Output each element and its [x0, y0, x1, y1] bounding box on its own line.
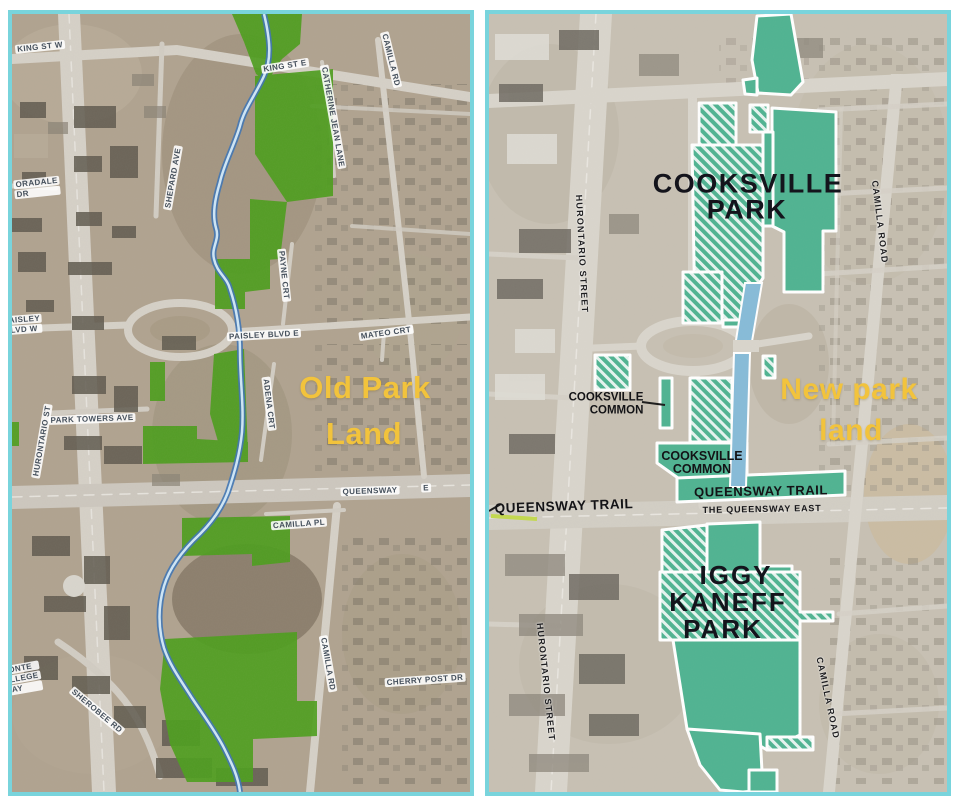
new-park-map-art — [489, 14, 947, 792]
old-park-map-art — [12, 14, 470, 792]
old-park-map: KING ST W KING ST E CAMILLA RD CATHERINE… — [12, 14, 470, 792]
old-park-map-panel: KING ST W KING ST E CAMILLA RD CATHERINE… — [8, 10, 474, 796]
park-comparison-figure: KING ST W KING ST E CAMILLA RD CATHERINE… — [0, 0, 957, 809]
new-park-map-panel: HURONTARIO STREET HURONTARIO STREET CAMI… — [485, 10, 951, 796]
new-park-map: HURONTARIO STREET HURONTARIO STREET CAMI… — [489, 14, 947, 792]
